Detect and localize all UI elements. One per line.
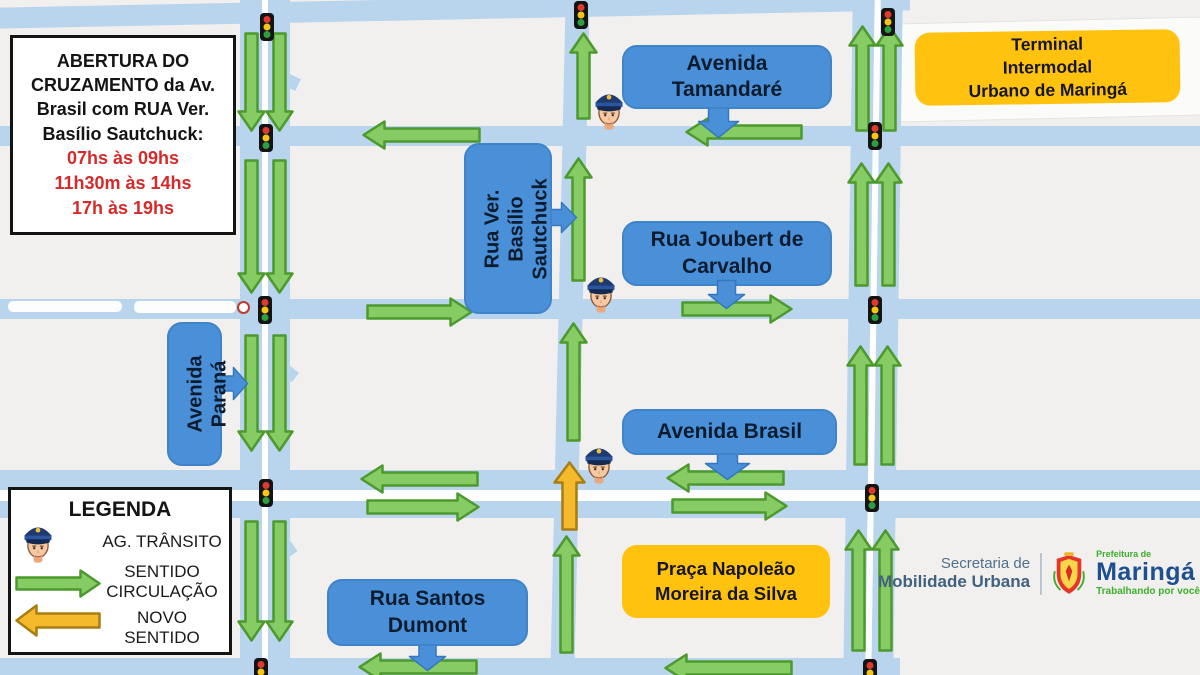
- traffic-light-icon: [257, 478, 275, 508]
- traffic-agent-icon: [20, 517, 56, 565]
- flow-arrow: [663, 652, 794, 675]
- street-label-tamandare: Avenida Tamandaré: [622, 45, 832, 109]
- legend-flow-label: SENTIDO CIRCULAÇÃO: [95, 562, 229, 602]
- traffic-light-icon: [866, 121, 884, 151]
- flow-arrow: [264, 519, 295, 643]
- traffic-light-icon: [863, 483, 881, 513]
- road-median: [134, 301, 236, 313]
- traffic-light-icon: [866, 295, 884, 325]
- street-label-joubert: Rua Joubert de Carvalho: [622, 221, 832, 286]
- traffic-map: Avenida Tamandaré Rua Ver. Basílio Sautc…: [0, 0, 1200, 675]
- flow-arrow: [361, 119, 482, 151]
- flow-arrow: [551, 534, 582, 655]
- city-slogan: Trabalhando por você: [1096, 587, 1200, 597]
- flow-arrow: [365, 491, 481, 523]
- place-label-praca: Praça Napoleão Moreira da Silva: [622, 545, 830, 618]
- flow-arrow: [236, 519, 267, 643]
- flow-arrow: [264, 31, 295, 133]
- place-label-terminal: Terminal Intermodal Urbano de Maringá: [915, 29, 1181, 106]
- traffic-light-icon: [879, 7, 897, 37]
- secretaria-line1: Secretaria de: [878, 555, 1030, 572]
- info-panel-title: ABERTURA DO CRUZAMENTO da Av. Brasil com…: [31, 49, 215, 146]
- traffic-light-icon: [252, 657, 270, 675]
- info-panel-times: 07hs às 09hs 11h30m às 14hs 17h às 19hs: [54, 146, 191, 222]
- flow-arrow: [236, 31, 267, 133]
- street-label-brasil: Avenida Brasil: [622, 409, 837, 455]
- city-name: Maringá: [1096, 560, 1200, 585]
- flow-arrow: [670, 490, 789, 522]
- legend-agent-label: AG. TRÂNSITO: [95, 532, 229, 552]
- footer-divider: [1040, 553, 1042, 595]
- traffic-light-icon: [256, 295, 274, 325]
- street-label-basilio-text: Rua Ver. Basílio Sautchuck: [481, 178, 553, 279]
- flow-arrow: [872, 344, 903, 467]
- footer-logos: Secretaria de Mobilidade Urbana Prefeitu…: [878, 550, 1200, 597]
- flow-arrow: [873, 161, 904, 288]
- legend-new-label: NOVO SENTIDO: [95, 608, 229, 648]
- label-pointer-arrow: [707, 279, 746, 310]
- road-top-diagonal: [0, 0, 910, 29]
- traffic-agent-icon: [581, 438, 617, 486]
- flow-arrow: [365, 296, 474, 328]
- secretaria-line2: Mobilidade Urbana: [878, 572, 1030, 592]
- info-panel: ABERTURA DO CRUZAMENTO da Av. Brasil com…: [10, 35, 236, 235]
- maringa-crest-icon: [1052, 552, 1086, 596]
- flow-arrow: [874, 24, 905, 133]
- median-end-marker: [237, 301, 250, 314]
- flow-arrow: [236, 158, 267, 295]
- traffic-light-icon: [861, 658, 879, 675]
- street-label-santos-dumont: Rua Santos Dumont: [327, 579, 528, 646]
- traffic-agent-icon: [583, 267, 619, 315]
- traffic-light-icon: [258, 12, 276, 42]
- flow-arrow: [14, 568, 102, 599]
- street-label-parana: Avenida Paraná: [167, 322, 222, 466]
- street-label-parana-text: Avenida Paraná: [184, 355, 232, 432]
- street-label-basilio: Rua Ver. Basílio Sautchuck: [464, 143, 552, 314]
- flow-arrow: [558, 321, 589, 443]
- flow-arrow: [264, 333, 295, 453]
- prefeitura-logo-text: Prefeitura de Maringá Trabalhando por vo…: [1096, 550, 1200, 597]
- traffic-light-icon: [257, 123, 275, 153]
- new-direction-arrow: [14, 603, 102, 638]
- flow-arrow: [264, 158, 295, 295]
- secretaria-logo-text: Secretaria de Mobilidade Urbana: [878, 555, 1030, 592]
- road-median: [8, 301, 122, 312]
- traffic-light-icon: [572, 0, 590, 30]
